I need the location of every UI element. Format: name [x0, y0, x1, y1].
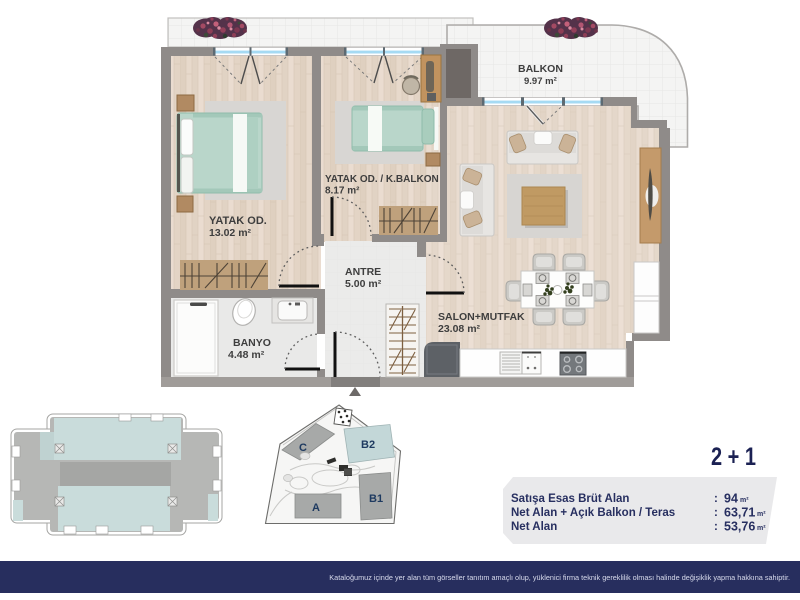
svg-text::: : — [714, 521, 718, 533]
svg-text:Kataloğumuz içinde yer alan tü: Kataloğumuz içinde yer alan tüm görselle… — [329, 573, 790, 582]
svg-text:ANTRE: ANTRE — [345, 266, 381, 278]
svg-text:BANYO: BANYO — [233, 337, 271, 349]
svg-text:13.02 m²: 13.02 m² — [209, 227, 252, 239]
svg-text:8.17 m²: 8.17 m² — [325, 186, 360, 197]
svg-text:m²: m² — [740, 497, 749, 504]
svg-text:C: C — [299, 442, 307, 454]
svg-text:YATAK OD. / K.BALKON: YATAK OD. / K.BALKON — [325, 174, 439, 185]
svg-text:BALKON: BALKON — [518, 63, 563, 75]
svg-text:Net Alan: Net Alan — [511, 521, 557, 533]
svg-text::: : — [714, 493, 718, 505]
svg-text:94: 94 — [724, 492, 738, 506]
svg-text:m²: m² — [757, 525, 766, 532]
svg-text:23.08 m²: 23.08 m² — [438, 323, 481, 335]
svg-text:63,71: 63,71 — [724, 506, 755, 520]
svg-text:Net Alan + Açık Balkon / Teras: Net Alan + Açık Balkon / Teras — [511, 507, 675, 519]
svg-text:9.97 m²: 9.97 m² — [524, 76, 557, 87]
svg-text:4.48 m²: 4.48 m² — [228, 349, 265, 361]
svg-text:m²: m² — [757, 511, 766, 518]
svg-text:Satışa Esas Brüt Alan: Satışa Esas Brüt Alan — [511, 493, 629, 505]
svg-text:5.00 m²: 5.00 m² — [345, 278, 382, 290]
svg-text:53,76: 53,76 — [724, 520, 755, 534]
svg-text::: : — [714, 507, 718, 519]
svg-text:B1: B1 — [369, 493, 383, 505]
svg-text:A: A — [312, 502, 320, 514]
svg-text:B2: B2 — [361, 439, 375, 451]
svg-text:SALON+MUTFAK: SALON+MUTFAK — [438, 311, 525, 323]
svg-text:2 + 1: 2 + 1 — [711, 443, 756, 471]
svg-text:YATAK OD.: YATAK OD. — [209, 215, 267, 227]
